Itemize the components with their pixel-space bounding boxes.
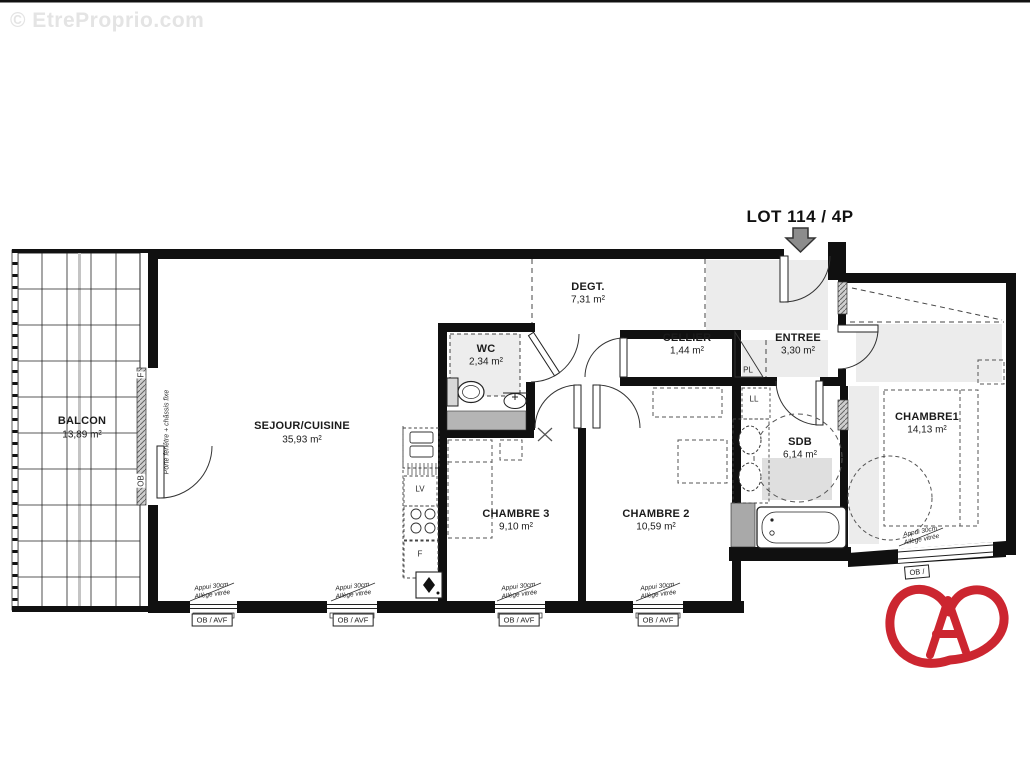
brand-logo-icon — [890, 589, 1004, 663]
room-label-sejour: SEJOUR/CUISINE — [254, 420, 350, 432]
sink-1 — [739, 426, 761, 454]
room-area-entree: 3,30 m² — [781, 346, 815, 357]
washer-label: LL — [750, 395, 759, 404]
dishwasher-label: LV — [415, 485, 424, 494]
room-area-chambre2: 10,59 m² — [636, 522, 675, 533]
cooktop — [404, 506, 438, 540]
room-area-chambre3: 9,10 m² — [499, 522, 533, 533]
room-label-entree: ENTREE — [775, 332, 821, 344]
toilet-tank — [447, 378, 458, 406]
room-area-cellier: 1,44 m² — [670, 346, 704, 357]
room-area-wc: 2,34 m² — [469, 357, 503, 368]
room-label-sdb: SDB — [788, 436, 812, 448]
sink-2 — [739, 463, 761, 491]
nightstand-chambre3 — [500, 440, 522, 460]
wardrobe-chambre2 — [653, 388, 722, 417]
balcony-door-note: Porte fenêtre + châssis fixe — [164, 390, 171, 475]
floor-plan-page: © EtreProprio.com LOT 114 / 4P BALCON 13… — [0, 0, 1030, 759]
entrance-arrow-icon — [786, 228, 815, 252]
window-tag-5: OB / — [904, 564, 930, 579]
window-f-label: F — [137, 372, 146, 379]
room-label-chambre3: CHAMBRE 3 — [482, 508, 549, 520]
bed-chambre3 — [448, 440, 492, 538]
placard-label: PL — [743, 366, 753, 375]
room-label-wc: WC — [477, 343, 496, 355]
room-area-sejour: 35,93 m² — [282, 435, 321, 446]
room-area-balcon: 13,89 m² — [62, 430, 101, 441]
wardrobe2-chambre2 — [678, 440, 727, 483]
window-tag-1: OB / AVF — [192, 614, 233, 627]
room-label-degt: DEGT. — [571, 281, 604, 293]
lot-title: LOT 114 / 4P — [746, 207, 853, 227]
room-area-degt: 7,31 m² — [571, 295, 605, 306]
room-area-chambre1: 14,13 m² — [907, 425, 946, 436]
watermark: © EtreProprio.com — [10, 9, 204, 33]
room-label-chambre1: CHAMBRE1 — [895, 411, 959, 423]
window-tag-3: OB / AVF — [499, 614, 540, 627]
room-label-balcon: BALCON — [58, 415, 106, 427]
kitchen-units — [403, 426, 442, 598]
cross-mark — [538, 428, 552, 441]
window-tag-2: OB / AVF — [333, 614, 374, 627]
toilet-bowl — [458, 382, 484, 403]
window-tag-4: OB / AVF — [638, 614, 679, 627]
page-top-border — [0, 0, 1030, 3]
fridge-label: F — [418, 550, 423, 559]
room-area-sdb: 6,14 m² — [783, 450, 817, 461]
drainboard — [408, 463, 436, 475]
floor-plan-drawing — [0, 0, 1030, 759]
window-ob-label: OB — [137, 474, 146, 488]
room-label-cellier: CELLIER — [663, 332, 711, 344]
room-label-chambre2: CHAMBRE 2 — [622, 508, 689, 520]
